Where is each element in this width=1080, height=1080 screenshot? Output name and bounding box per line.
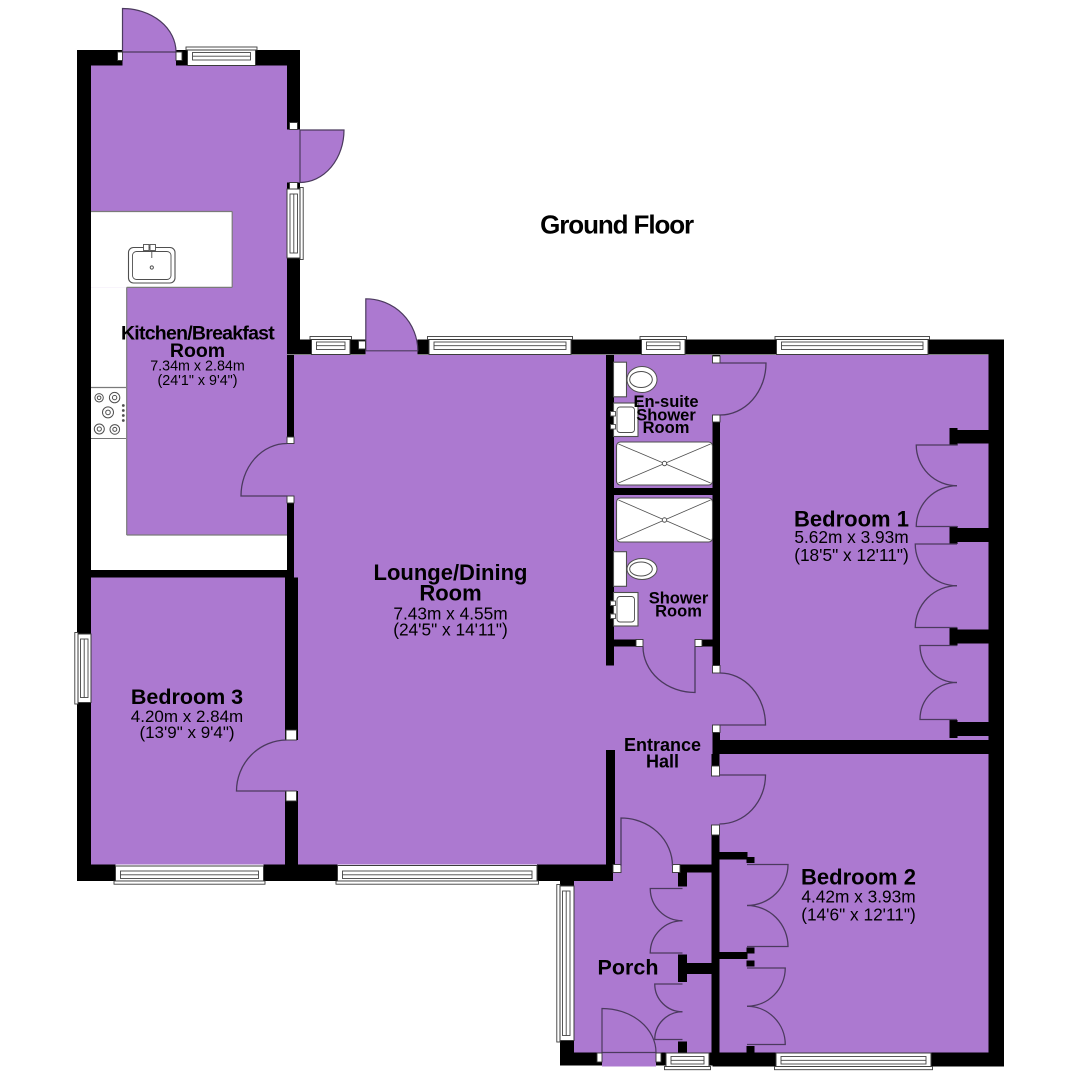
- svg-text:(13'9" x 9'4"): (13'9" x 9'4"): [139, 723, 234, 742]
- svg-text:Room: Room: [419, 580, 481, 605]
- svg-text:4.42m x 3.93m: 4.42m x 3.93m: [801, 887, 915, 907]
- svg-text:Room: Room: [643, 419, 690, 437]
- svg-text:(24'1" x 9'4"): (24'1" x 9'4"): [158, 373, 238, 389]
- svg-text:(18'5" x 12'11"): (18'5" x 12'11"): [794, 545, 909, 565]
- svg-text:(14'6" x 12'11"): (14'6" x 12'11"): [801, 905, 916, 925]
- svg-text:Ground Floor: Ground Floor: [540, 209, 694, 239]
- svg-text:Bedroom 3: Bedroom 3: [131, 685, 243, 709]
- svg-text:Room: Room: [655, 603, 702, 621]
- svg-text:5.62m x 3.93m: 5.62m x 3.93m: [794, 527, 908, 547]
- svg-text:Porch: Porch: [598, 955, 659, 979]
- svg-text:Hall: Hall: [646, 752, 679, 772]
- svg-text:(24'5" x 14'11"): (24'5" x 14'11"): [393, 620, 508, 640]
